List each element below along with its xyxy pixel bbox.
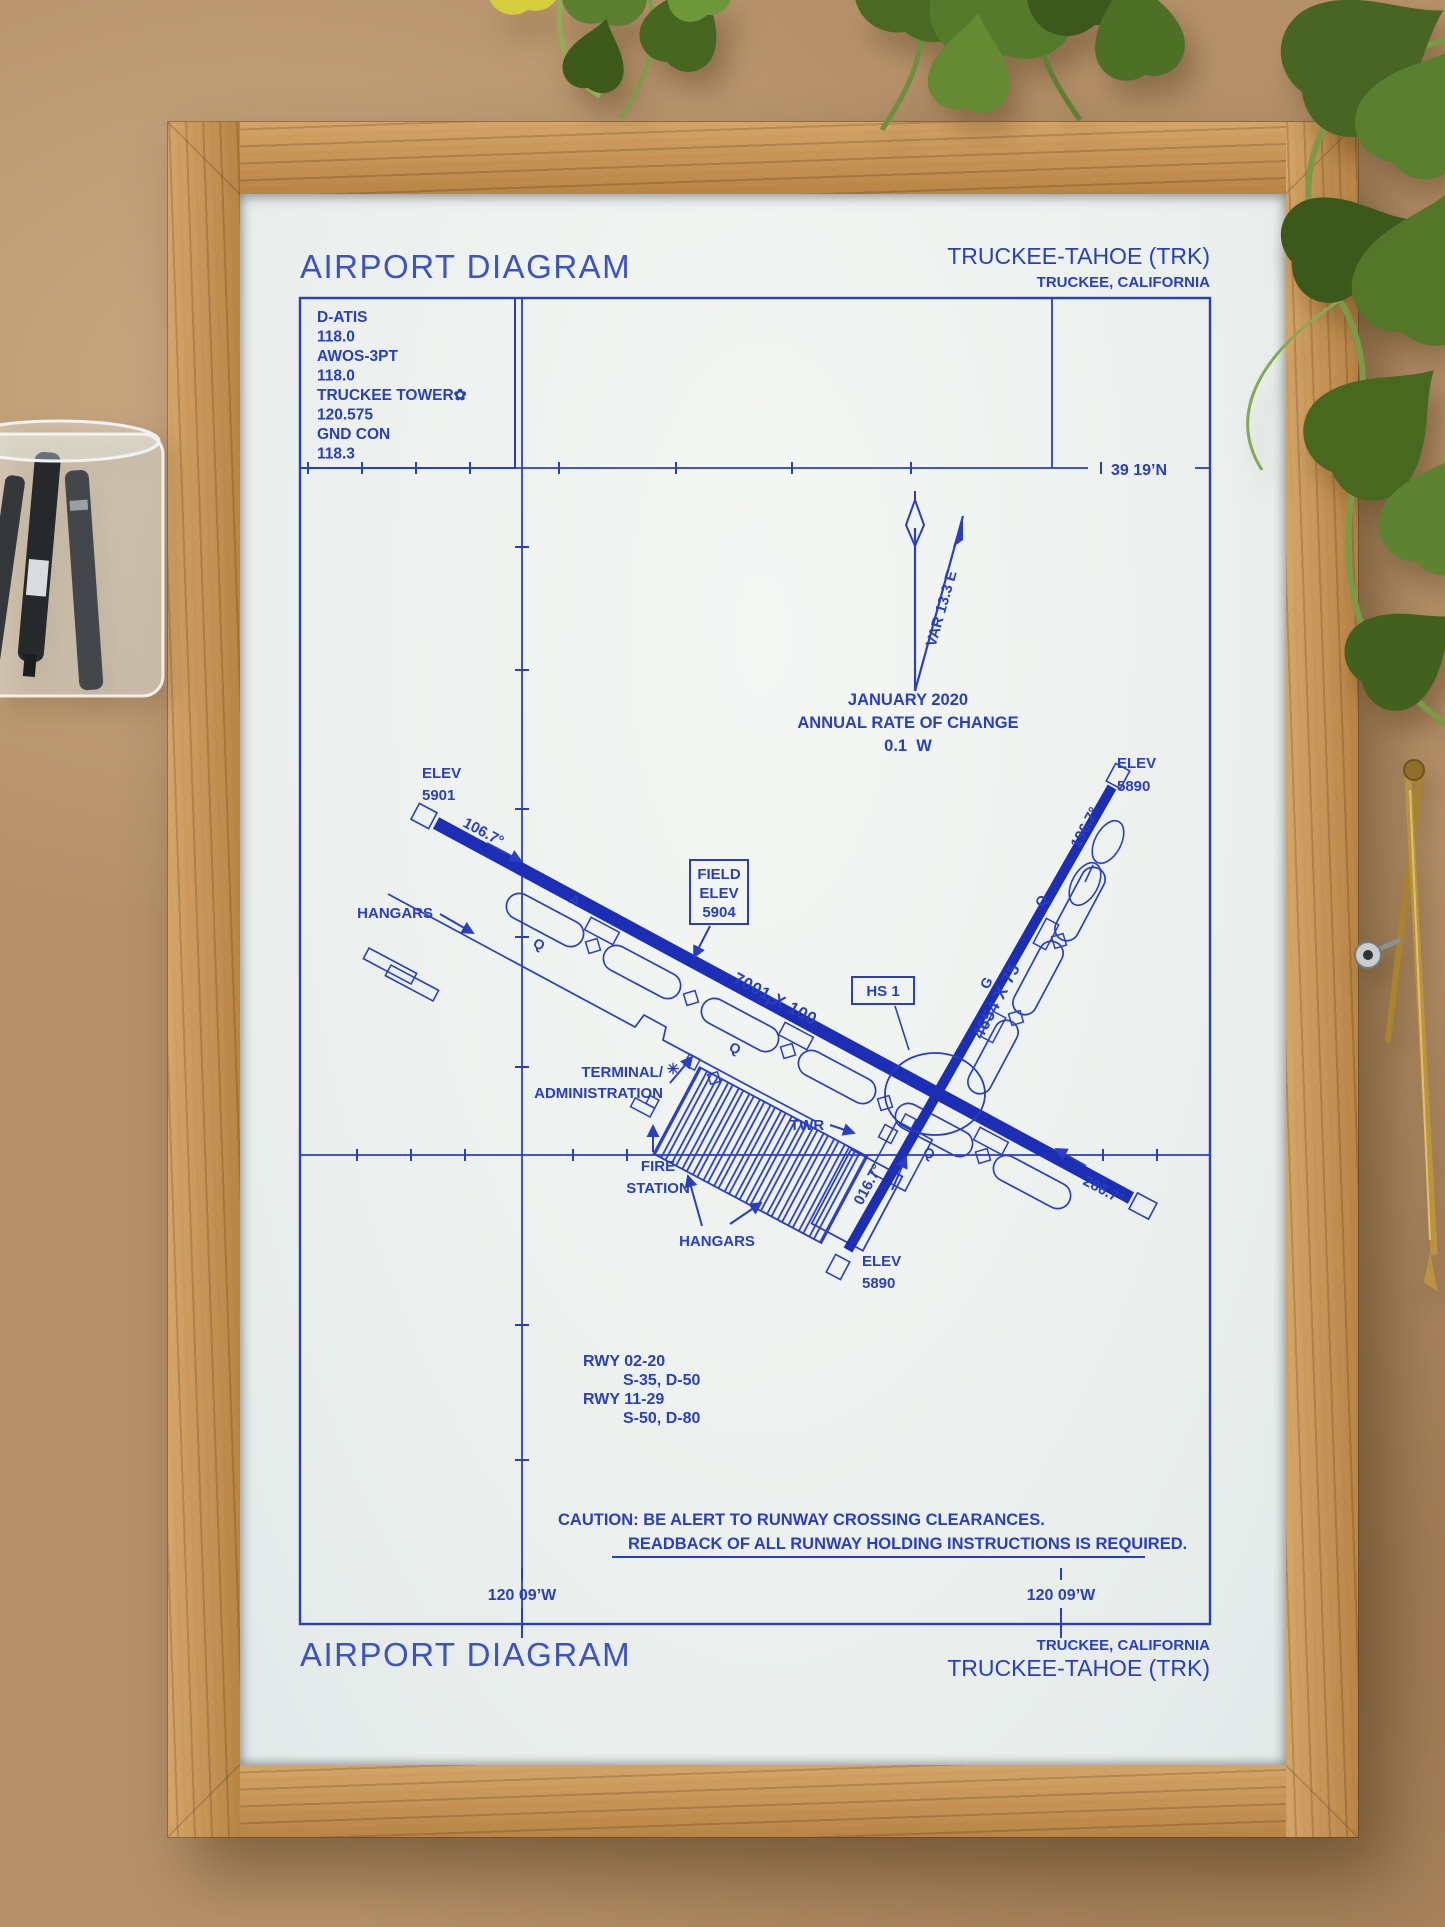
runway-data-block: RWY 02-20 S-35, D-50 RWY 11-29 S-50, D-8… [583,1353,700,1427]
magnetic-variation-label: VAR 13.3 E [923,569,961,649]
taxiway-letter: Q [727,1039,744,1058]
elevation-label-nw: ELEV 5901 [422,765,461,804]
pen [0,474,26,665]
caution-note: CAUTION: BE ALERT TO RUNWAY CROSSING CLE… [558,1511,1187,1557]
comm-line: 118.0 [317,368,355,385]
glass-cup [0,421,163,696]
elev-text: ELEV [1117,755,1156,772]
hangars-left-label: HANGARS [357,905,433,922]
comm-frequency-box: D-ATIS 118.0 AWOS-3PT 118.0 TRUCKEE TOWE… [317,309,467,463]
plant-leaf [477,0,565,19]
hangar-hatched-block [654,1067,868,1243]
comm-line: D-ATIS [317,309,368,326]
caution-line: READBACK OF ALL RUNWAY HOLDING INSTRUCTI… [628,1535,1187,1553]
elev-text: 5890 [862,1275,895,1292]
metal-knob [1355,940,1400,968]
plant-leaf [558,10,637,97]
variation-date: JANUARY 2020 [848,691,968,709]
pen [64,470,103,691]
elev-text: 5901 [422,787,455,804]
runway-02-20-dimensions: 4654 X 75 [969,961,1024,1042]
frame-bar-left [168,122,240,1837]
plant-leaf [1082,0,1190,86]
caution-line: CAUTION: BE ALERT TO RUNWAY CROSSING CLE… [558,1511,1045,1529]
footer-airport: TRUCKEE-TAHOE (TRK) [947,1655,1210,1681]
beacon-symbol-icon: ✳ [667,1061,680,1078]
footer-city: TRUCKEE, CALIFORNIA [1037,1637,1210,1654]
tower-arrow [830,1125,854,1133]
rwy-info-line: RWY 11-29 [583,1391,664,1408]
elev-text: ELEV [422,765,461,782]
frame-bar-bottom [168,1765,1358,1837]
airport-city: TRUCKEE, CALIFORNIA [1037,274,1210,291]
elevation-label-ne: ELEV 5890 [1117,755,1156,795]
elev-text: ELEV [862,1253,901,1270]
hotspot-text: HS 1 [866,983,899,1000]
hangars-text: HANGARS [679,1233,755,1250]
field-elev-text: FIELD [697,866,740,883]
comm-line: TRUCKEE TOWER✿ [317,387,467,404]
pen [16,451,62,677]
plant-leaf [999,0,1151,46]
picture-frame: AIRPORT DIAGRAM TRUCKEE-TAHOE (TRK) TRUC… [168,122,1358,1837]
poster-paper: AIRPORT DIAGRAM TRUCKEE-TAHOE (TRK) TRUC… [240,194,1286,1765]
frame-bar-right [1286,122,1358,1837]
frame-miter-icon [1286,1765,1358,1837]
terminal-text: TERMINAL/ [581,1064,663,1081]
plant-cluster-top-left [477,0,741,118]
frame-miter-icon [1286,122,1358,194]
elev-text: 5890 [1117,778,1150,795]
variation-value: 0.1 W [884,737,932,755]
airport-diagram: AIRPORT DIAGRAM TRUCKEE-TAHOE (TRK) TRUC… [240,194,1286,1765]
true-north-arrow [906,491,924,691]
fire-text: FIRE [641,1158,675,1175]
terminal-text: ADMINISTRATION [534,1085,663,1102]
field-elevation-box: FIELD ELEV 5904 [690,860,748,957]
hangar-buildings-nw [363,948,438,1001]
plant-leaf [924,7,1019,116]
plant-leaf [845,0,1002,52]
glass-rim [0,421,159,461]
comm-line: GND CON [317,426,390,443]
airport-name: TRUCKEE-TAHOE (TRK) [947,243,1210,269]
variation-rate: ANNUAL RATE OF CHANGE [797,714,1018,732]
fire-text: STATION [626,1180,690,1197]
plant-cluster-top-right [845,0,1190,130]
footer-title: AIRPORT DIAGRAM [300,1636,631,1673]
variation-note: JANUARY 2020 ANNUAL RATE OF CHANGE 0.1 W [797,691,1018,755]
photo-scene: AIRPORT DIAGRAM TRUCKEE-TAHOE (TRK) TRUC… [0,0,1445,1927]
rwy-info-line: S-50, D-80 [623,1410,700,1427]
taxiway-letter: Q [531,935,548,954]
rwy-info-line: S-35, D-50 [623,1372,700,1389]
longitude-label-right: 120 09’W [1027,1587,1096,1604]
chart-border [300,298,1210,1624]
comm-line: 118.0 [317,329,355,346]
plant-leaf [1366,426,1445,587]
latitude-label: 39 19’N [1111,462,1167,479]
comm-line: 120.575 [317,407,373,424]
plant-leaf [631,0,741,81]
elevation-label-sw: ELEV 5890 [862,1253,901,1292]
frame-miter-icon [168,122,240,194]
tower-label: TWR [790,1117,824,1134]
comm-line: AWOS-3PT [317,348,398,365]
longitude-label-left: 120 09’W [488,1587,557,1604]
divider-compass [1388,760,1438,1292]
plant-leaf [925,0,1079,62]
rwy-info-line: RWY 02-20 [583,1353,665,1370]
plant-leaf [650,0,739,28]
runway-heading-ne: 196.7° [1068,804,1103,850]
graticule-lines [300,298,1210,1624]
frame-bar-top [168,122,1358,194]
field-elev-text: 5904 [702,904,736,921]
comm-line: 118.3 [317,446,355,463]
field-elev-text: ELEV [699,885,738,902]
frame-miter-icon [168,1765,240,1837]
hotspot-box: HS 1 [852,977,914,1050]
taxiway-letter: Q [921,1144,938,1163]
plant-leaf [559,0,654,29]
diagram-title: AIRPORT DIAGRAM [300,248,631,285]
